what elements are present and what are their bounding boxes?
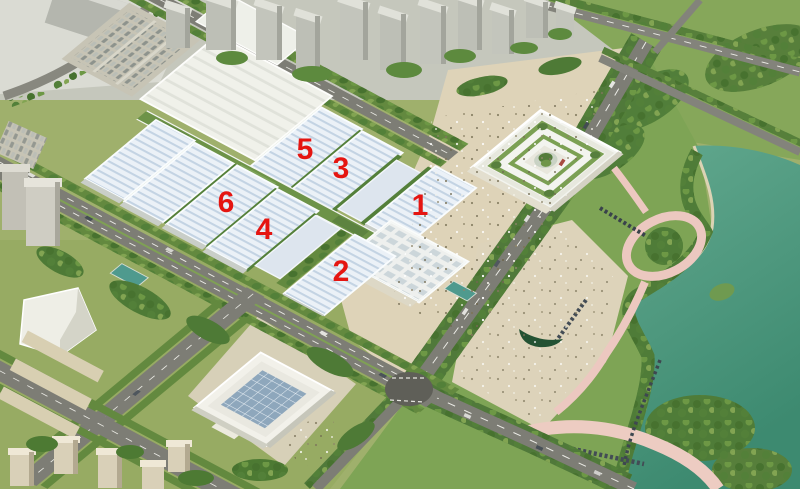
aerial-rendering (0, 0, 800, 489)
hall-marker-6: 6 (218, 188, 235, 218)
site-plan-rendering: 123456 (0, 0, 800, 489)
hall-marker-2: 2 (333, 257, 350, 287)
hall-marker-3: 3 (333, 154, 350, 184)
hall-marker-4: 4 (256, 215, 273, 245)
hall-marker-1: 1 (412, 191, 429, 221)
main-intersection (385, 372, 433, 406)
hall-marker-5: 5 (297, 135, 314, 165)
